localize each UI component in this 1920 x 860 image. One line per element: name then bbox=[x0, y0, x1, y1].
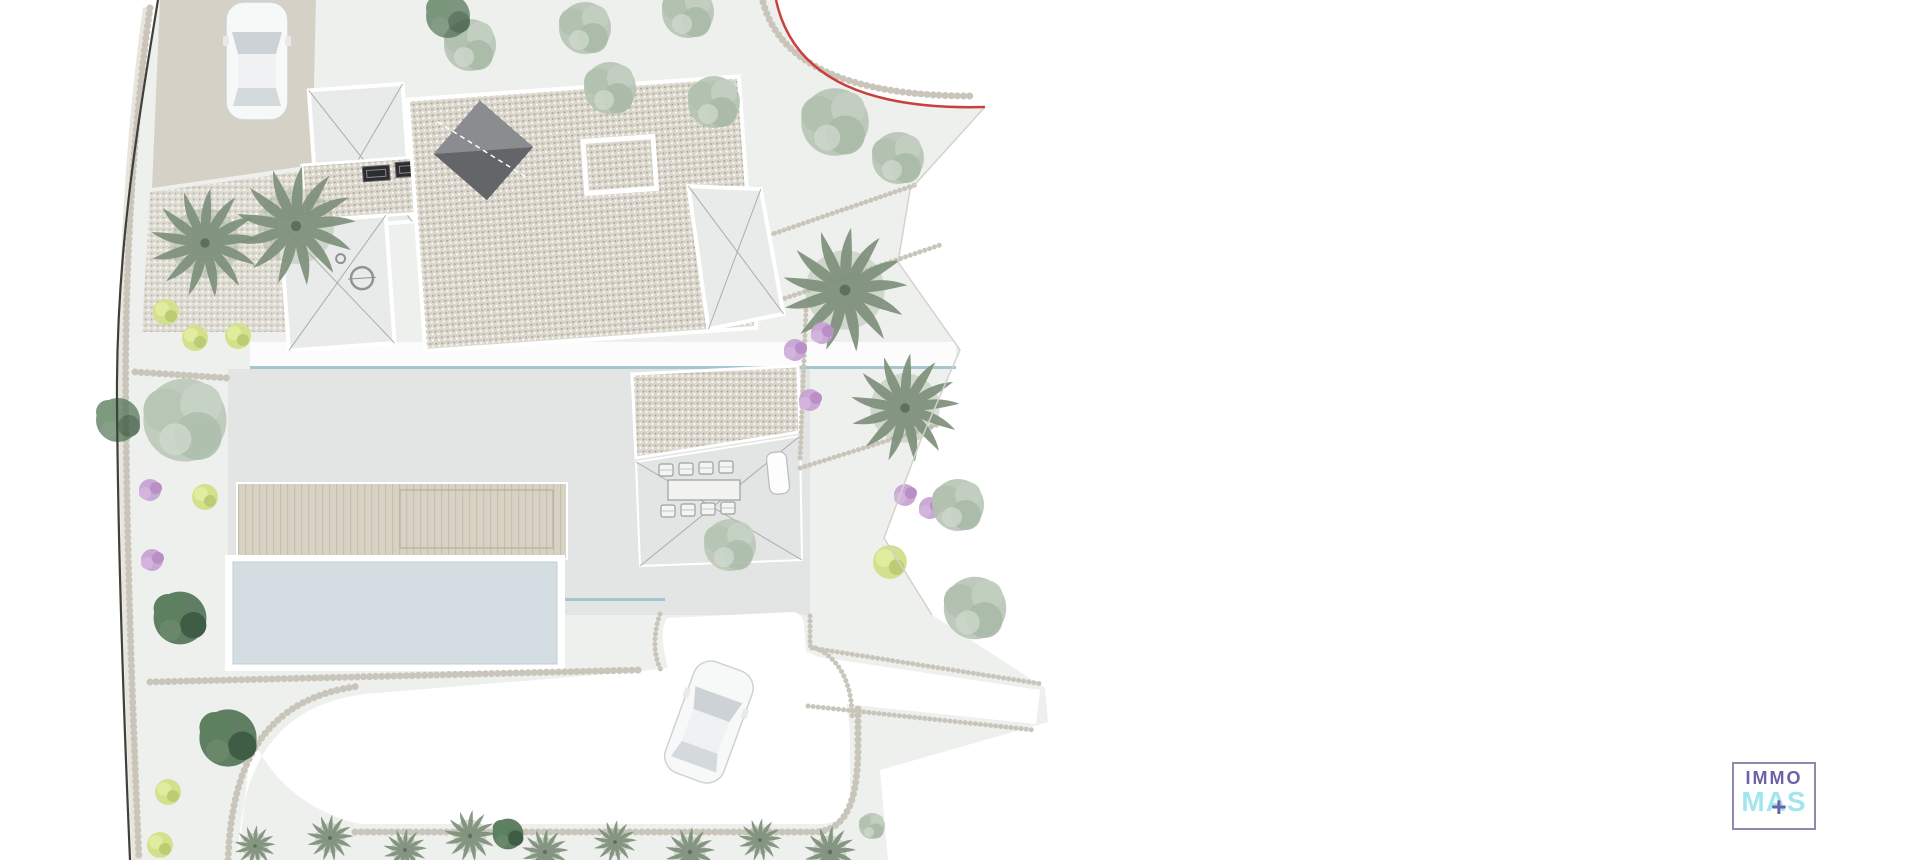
lounger bbox=[766, 451, 790, 495]
logo-text-immo: IMMO bbox=[1734, 769, 1814, 787]
site-plan-graphic bbox=[0, 0, 1100, 860]
tree bbox=[801, 88, 869, 156]
tree bbox=[872, 132, 924, 184]
bush bbox=[153, 299, 179, 325]
tree bbox=[154, 592, 207, 645]
water-feature-line bbox=[250, 366, 956, 369]
tree bbox=[944, 577, 1006, 639]
bush bbox=[873, 545, 907, 579]
bush bbox=[225, 323, 251, 349]
bush bbox=[192, 484, 218, 510]
tree bbox=[704, 519, 756, 571]
roof-gravel-inset bbox=[583, 137, 656, 194]
parked-car-top bbox=[223, 2, 291, 120]
pool-channel-line bbox=[565, 598, 665, 601]
bush bbox=[182, 325, 208, 351]
page: IMMO MAS + bbox=[0, 0, 1920, 860]
tree bbox=[932, 479, 984, 531]
tree bbox=[559, 2, 611, 54]
tree bbox=[584, 62, 636, 114]
immo-mas-logo: IMMO MAS + bbox=[1732, 762, 1816, 830]
bush bbox=[155, 779, 181, 805]
tree bbox=[688, 76, 740, 128]
swimming-pool bbox=[233, 562, 557, 664]
tree bbox=[143, 378, 226, 461]
bush bbox=[147, 832, 173, 858]
logo-plus-icon: + bbox=[1771, 792, 1787, 823]
tree bbox=[199, 709, 256, 766]
